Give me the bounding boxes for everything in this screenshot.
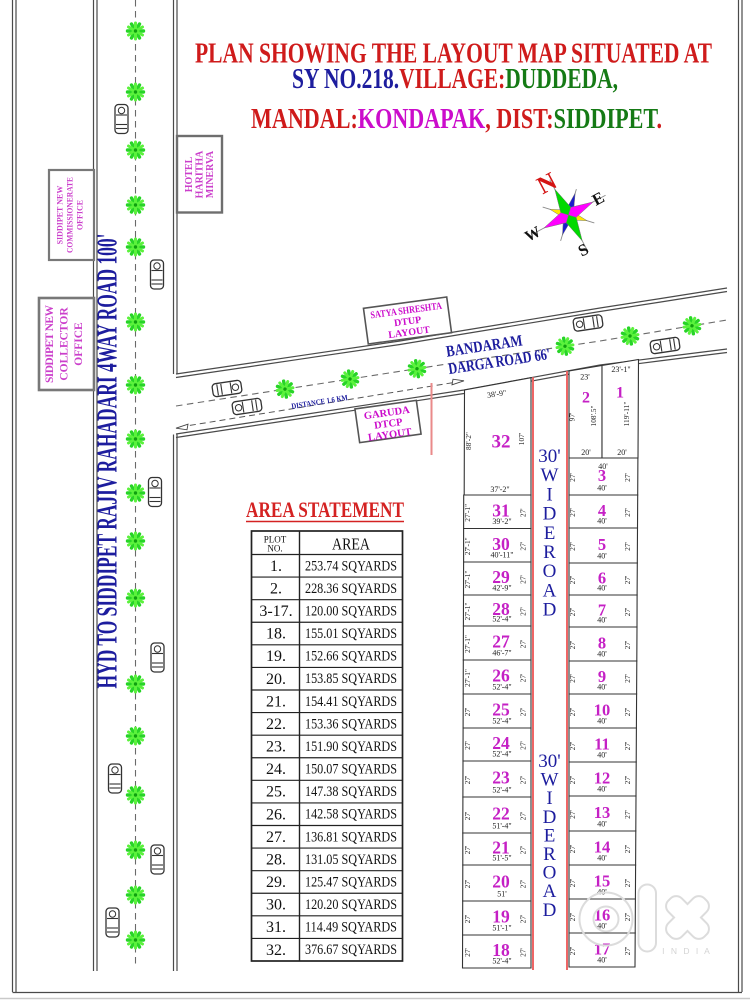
svg-text:23'-1": 23'-1" [611, 365, 630, 374]
svg-text:19.: 19. [266, 648, 286, 665]
svg-text:27': 27' [623, 472, 632, 481]
svg-text:3: 3 [598, 466, 606, 485]
svg-text:18.: 18. [266, 626, 286, 643]
svg-text:27': 27' [568, 844, 577, 853]
svg-text:27'-1": 27'-1" [463, 571, 472, 589]
svg-text:51'-1": 51'-1" [492, 924, 511, 933]
svg-text:NO.: NO. [267, 544, 282, 554]
svg-text:27': 27' [568, 640, 577, 649]
svg-text:27': 27' [623, 541, 632, 550]
svg-text:28.: 28. [266, 851, 286, 868]
svg-text:W: W [541, 465, 559, 486]
svg-text:SIDDIPET NEW: SIDDIPET NEW [44, 305, 56, 384]
svg-text:24.: 24. [266, 761, 286, 778]
svg-text:D: D [543, 504, 557, 525]
svg-text:27': 27' [568, 673, 577, 682]
svg-text:108'.5": 108'.5" [589, 406, 598, 427]
svg-text:27': 27' [568, 607, 577, 616]
svg-text:27': 27' [623, 640, 632, 649]
svg-text:27': 27' [623, 878, 632, 887]
svg-text:1.: 1. [270, 558, 282, 575]
svg-text:HOTEL: HOTEL [184, 156, 195, 192]
svg-text:51'-5": 51'-5" [492, 854, 511, 863]
svg-text:29.: 29. [266, 874, 286, 891]
svg-text:30.: 30. [266, 897, 286, 914]
svg-text:32: 32 [492, 432, 511, 453]
svg-text:27': 27' [568, 472, 577, 481]
svg-text:20.: 20. [266, 671, 286, 688]
svg-text:52'-4": 52'-4" [492, 615, 511, 624]
svg-text:D: D [543, 600, 557, 621]
svg-text:40': 40' [597, 820, 607, 829]
svg-text:27': 27' [623, 946, 632, 955]
svg-text:27': 27' [519, 845, 528, 854]
svg-text:2.: 2. [270, 580, 282, 597]
svg-text:HARITHA: HARITHA [195, 150, 206, 199]
svg-text:114.49 SQYARDS: 114.49 SQYARDS [305, 920, 397, 936]
svg-text:W: W [522, 223, 544, 246]
svg-text:27'-1": 27'-1" [463, 635, 472, 653]
svg-text:27': 27' [623, 707, 632, 716]
svg-text:E: E [589, 188, 608, 210]
svg-text:COLLECTOR: COLLECTOR [59, 307, 71, 381]
svg-text:I: I [546, 484, 552, 505]
svg-text:27'-1": 27'-1" [463, 603, 472, 621]
svg-text:32.: 32. [266, 942, 286, 959]
svg-text:27': 27' [519, 673, 528, 682]
svg-text:27': 27' [519, 947, 528, 956]
svg-text:27': 27' [568, 507, 577, 516]
svg-text:AREA: AREA [332, 535, 371, 554]
svg-text:27': 27' [519, 707, 528, 716]
svg-text:20: 20 [492, 872, 510, 892]
svg-text:27': 27' [519, 914, 528, 923]
svg-text:20': 20' [581, 448, 591, 457]
svg-text:27': 27' [623, 575, 632, 584]
svg-text:142.58 SQYARDS: 142.58 SQYARDS [305, 807, 397, 823]
svg-text:40': 40' [597, 552, 607, 561]
svg-text:40': 40' [597, 956, 607, 965]
svg-text:253.74 SQYARDS: 253.74 SQYARDS [305, 558, 397, 574]
svg-text:31.: 31. [266, 919, 286, 936]
svg-text:42'-9": 42'-9" [492, 584, 511, 593]
svg-text:27': 27' [519, 639, 528, 648]
svg-text:OFFICE: OFFICE [76, 200, 85, 230]
svg-text:120.00 SQYARDS: 120.00 SQYARDS [305, 603, 397, 619]
svg-text:27': 27' [519, 740, 528, 749]
svg-text:40': 40' [597, 517, 607, 526]
svg-text:40': 40' [597, 785, 607, 794]
svg-text:27': 27' [519, 775, 528, 784]
svg-text:52'-4": 52'-4" [492, 786, 511, 795]
svg-text:27': 27' [519, 541, 528, 550]
svg-text:1: 1 [616, 385, 624, 402]
svg-text:O: O [543, 561, 557, 582]
svg-text:153.85 SQYARDS: 153.85 SQYARDS [305, 671, 397, 687]
svg-text:88'-2": 88'-2" [464, 432, 473, 450]
svg-text:27': 27' [568, 809, 577, 818]
svg-text:27': 27' [568, 741, 577, 750]
svg-text:39'-2": 39'-2" [492, 517, 511, 526]
svg-text:107': 107' [517, 432, 526, 445]
svg-text:20': 20' [617, 448, 627, 457]
svg-text:151.90 SQYARDS: 151.90 SQYARDS [305, 739, 397, 755]
svg-text:27': 27' [568, 912, 577, 921]
svg-text:26.: 26. [266, 806, 286, 823]
svg-text:40': 40' [597, 751, 607, 760]
svg-text:S: S [575, 239, 592, 260]
svg-text:27': 27' [568, 707, 577, 716]
svg-text:AREA STATEMENT: AREA STATEMENT [246, 497, 404, 522]
svg-text:52'-4": 52'-4" [492, 750, 511, 759]
svg-text:152.66 SQYARDS: 152.66 SQYARDS [305, 649, 397, 665]
svg-text:21.: 21. [266, 693, 286, 710]
svg-text:E: E [544, 523, 556, 544]
svg-text:27': 27' [463, 947, 472, 956]
svg-text:MANDAL:KONDAPAK, DIST:SIDDIPET: MANDAL:KONDAPAK, DIST:SIDDIPET. [251, 104, 662, 135]
svg-text:3-17.: 3-17. [259, 603, 292, 620]
svg-text:150.07 SQYARDS: 150.07 SQYARDS [305, 762, 397, 778]
svg-text:27': 27' [568, 878, 577, 887]
svg-text:27': 27' [463, 775, 472, 784]
svg-text:SY NO.218.VILLAGE:DUDDEDA,: SY NO.218.VILLAGE:DUDDEDA, [292, 64, 618, 95]
svg-text:27': 27' [623, 741, 632, 750]
svg-text:27.: 27. [266, 829, 286, 846]
svg-text:27': 27' [568, 775, 577, 784]
svg-text:2: 2 [582, 390, 590, 407]
svg-text:51'-4": 51'-4" [492, 822, 511, 831]
svg-text:27'-1": 27'-1" [463, 537, 472, 555]
svg-text:52'-4": 52'-4" [492, 957, 511, 966]
svg-text:40': 40' [597, 616, 607, 625]
svg-text:23: 23 [492, 768, 510, 788]
svg-text:228.36 SQYARDS: 228.36 SQYARDS [305, 581, 397, 597]
svg-text:154.41 SQYARDS: 154.41 SQYARDS [305, 694, 397, 710]
svg-text:27': 27' [623, 507, 632, 516]
svg-text:40': 40' [597, 650, 607, 659]
svg-text:HYD TO SIDDIPET RAJIV RAHADARI: HYD TO SIDDIPET RAJIV RAHADARI 4WAY ROAD… [93, 234, 124, 689]
svg-text:40': 40' [597, 584, 607, 593]
svg-text:R: R [543, 542, 556, 563]
svg-text:27': 27' [463, 845, 472, 854]
svg-text:MINERVA: MINERVA [205, 150, 216, 198]
svg-text:147.38 SQYARDS: 147.38 SQYARDS [305, 784, 397, 800]
svg-text:119'-11": 119'-11" [622, 402, 631, 427]
svg-text:155.01 SQYARDS: 155.01 SQYARDS [305, 626, 397, 642]
svg-text:SIDDIPET NEW: SIDDIPET NEW [56, 186, 65, 245]
svg-text:27': 27' [519, 879, 528, 888]
svg-text:27': 27' [623, 607, 632, 616]
svg-text:D: D [543, 900, 557, 921]
svg-text:23.: 23. [266, 739, 286, 756]
svg-text:22: 22 [492, 804, 510, 824]
svg-text:22.: 22. [266, 716, 286, 733]
svg-text:OFFICE: OFFICE [73, 322, 85, 366]
svg-text:40'-11": 40'-11" [490, 551, 513, 560]
svg-text:27': 27' [623, 844, 632, 853]
svg-text:27'-1": 27'-1" [463, 669, 472, 687]
svg-text:23': 23' [580, 373, 590, 382]
svg-text:27': 27' [568, 541, 577, 550]
svg-text:52'-4": 52'-4" [492, 683, 511, 692]
svg-text:125.47 SQYARDS: 125.47 SQYARDS [305, 874, 397, 890]
svg-text:27': 27' [623, 775, 632, 784]
svg-text:27': 27' [519, 811, 528, 820]
svg-text:DISTANCE 1.6 KM: DISTANCE 1.6 KM [291, 393, 349, 411]
svg-text:136.81 SQYARDS: 136.81 SQYARDS [305, 829, 397, 845]
svg-text:27': 27' [463, 740, 472, 749]
svg-text:27': 27' [568, 946, 577, 955]
svg-text:27'-1": 27'-1" [463, 504, 472, 522]
svg-text:27': 27' [623, 912, 632, 921]
svg-text:A: A [543, 580, 557, 601]
svg-text:40': 40' [597, 484, 607, 493]
svg-text:27': 27' [463, 707, 472, 716]
svg-text:376.67 SQYARDS: 376.67 SQYARDS [305, 942, 397, 958]
svg-text:27': 27' [519, 606, 528, 615]
svg-text:153.36 SQYARDS: 153.36 SQYARDS [305, 716, 397, 732]
svg-text:I N D I A: I N D I A [662, 946, 712, 956]
svg-text:46'-7": 46'-7" [492, 649, 511, 658]
svg-text:40': 40' [597, 683, 607, 692]
svg-text:52'-4": 52'-4" [492, 717, 511, 726]
svg-text:97': 97' [568, 412, 577, 421]
svg-text:30': 30' [538, 446, 560, 467]
svg-text:40': 40' [597, 854, 607, 863]
svg-text:131.05 SQYARDS: 131.05 SQYARDS [305, 852, 397, 868]
svg-text:27': 27' [623, 673, 632, 682]
svg-text:27': 27' [568, 575, 577, 584]
svg-text:37'-2": 37'-2" [490, 485, 509, 494]
svg-text:27': 27' [463, 914, 472, 923]
svg-text:25.: 25. [266, 784, 286, 801]
svg-text:40': 40' [597, 717, 607, 726]
svg-text:27': 27' [519, 574, 528, 583]
svg-text:27': 27' [463, 811, 472, 820]
svg-text:120.20 SQYARDS: 120.20 SQYARDS [305, 897, 397, 913]
svg-text:27': 27' [519, 508, 528, 517]
svg-text:COMMISSIONERATE: COMMISSIONERATE [66, 177, 75, 253]
svg-text:27': 27' [463, 879, 472, 888]
svg-text:51': 51' [497, 890, 507, 899]
svg-text:27': 27' [623, 809, 632, 818]
